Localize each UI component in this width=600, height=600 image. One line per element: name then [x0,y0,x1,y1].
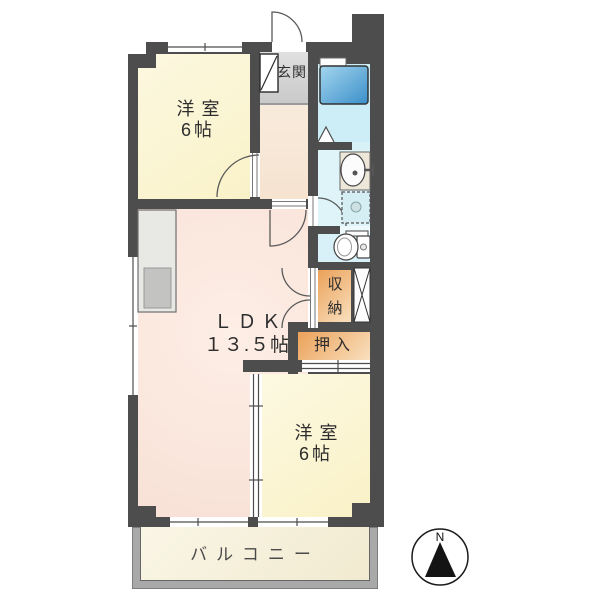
bedroom-top-label: 洋室 6帖 [146,99,250,141]
floorplan: 洋室 6帖 玄関 ＬＤＫ １３.５帖 収納 押入 洋室 6帖 バルコニー N [0,0,600,600]
wall-corner-step-bottom-left [132,506,156,527]
entrance-label: 玄関 [274,65,310,80]
door-gap-ldk [272,199,306,209]
room-bathroom [318,64,370,142]
closet-label: 押入 [298,336,370,355]
bedroom-top-size: 6帖 [146,120,250,141]
bedroom-bottom-size: 6帖 [264,444,368,465]
window-left [128,257,138,395]
bedroom-bottom-label: 洋室 6帖 [264,423,368,465]
bathroom-entry-gap [352,142,370,150]
sliding-door-closet [302,360,370,372]
sliding-partition-ldk-bedroom [250,374,262,517]
balcony-label: バルコニー [155,545,355,565]
window-top [168,42,242,52]
wall-protrusion-top-right [352,14,384,42]
ldk-name: ＬＤＫ [167,311,332,334]
room-hallway [260,105,308,199]
bedroom-bottom-name: 洋室 [264,423,375,444]
toilet-entry-gap [340,226,370,234]
room-toilet [318,234,370,262]
door-gap-bedroom-top [250,153,260,197]
wall-corner-step-top-left [138,54,156,68]
wall-corner-block-bottom-right [352,503,384,527]
window-bottom-bedroom [258,517,328,527]
wall-bedroom-bottom-top [243,360,302,372]
room-washroom [318,150,370,226]
bedroom-top-name: 洋室 [146,99,257,120]
door-gap-washroom [308,196,318,226]
window-bottom-ldk [170,517,248,527]
storage-label: 収納 [326,273,344,321]
compass-north-label: N [431,531,449,544]
exterior-notch [128,42,146,54]
entrance-door-gap [272,42,306,52]
